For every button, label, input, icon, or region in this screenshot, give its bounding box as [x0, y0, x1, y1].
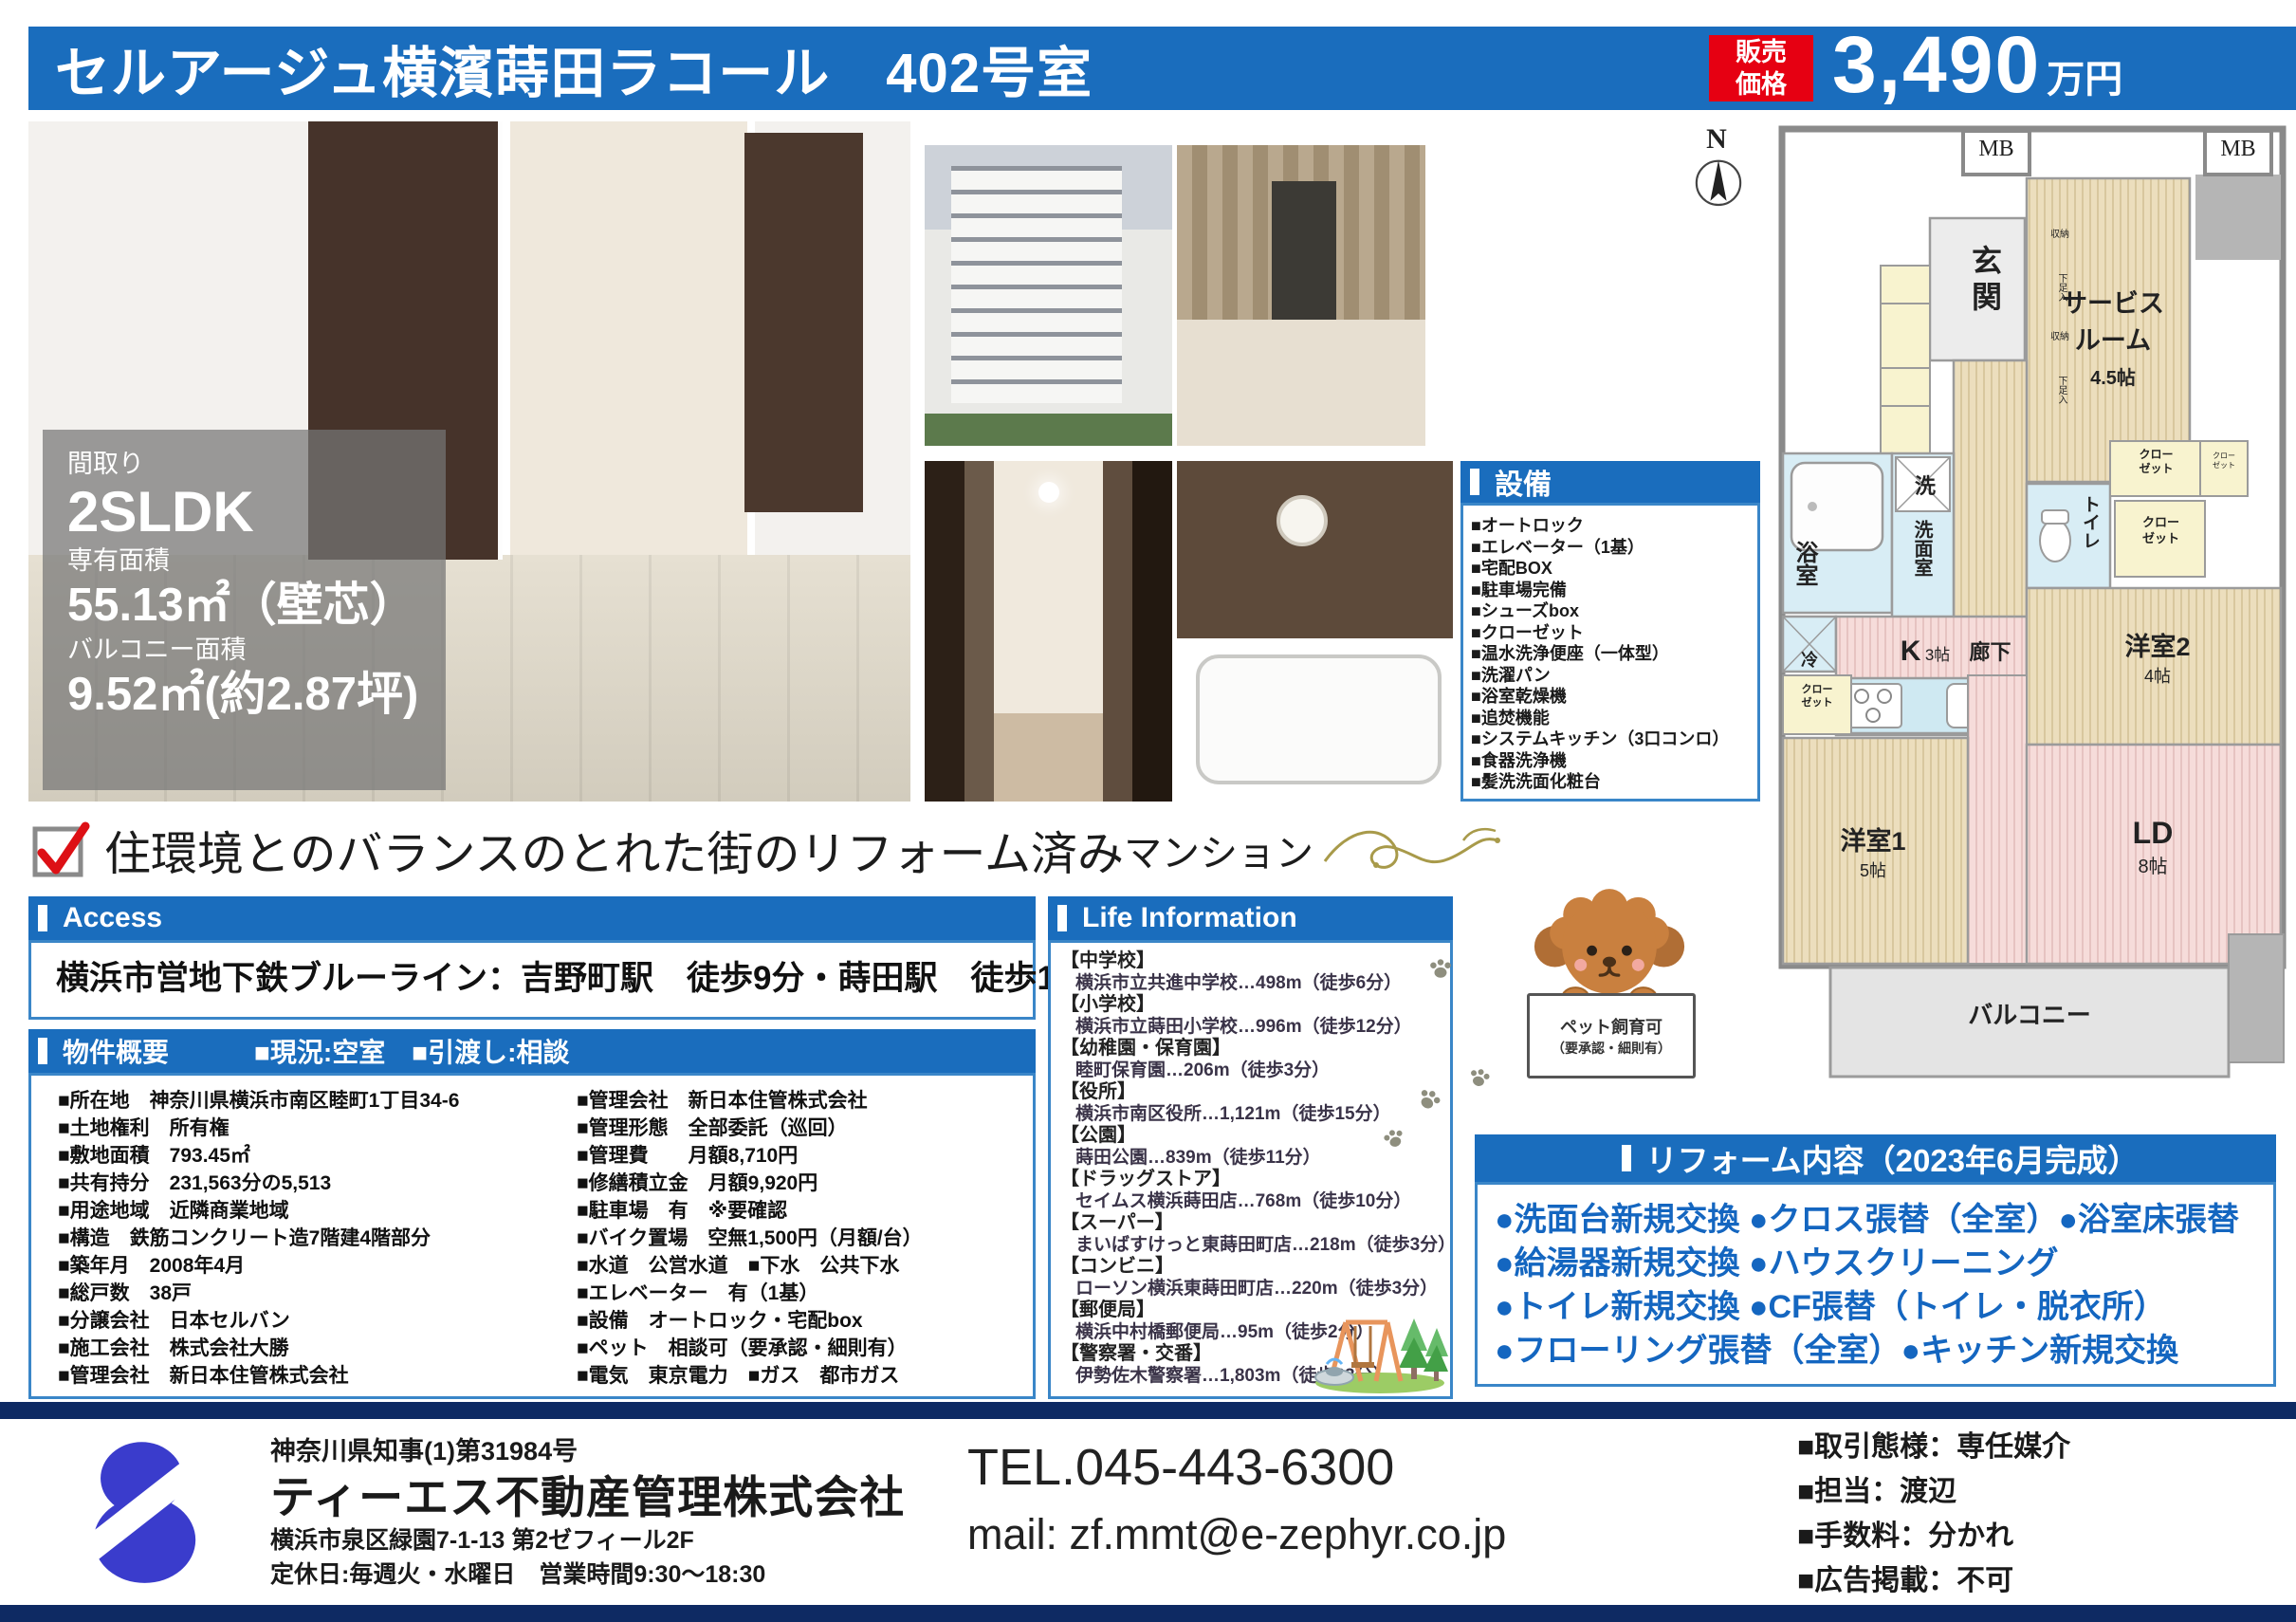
building-greenery [925, 414, 1172, 446]
compass-icon [1690, 152, 1747, 212]
hallway-light [1038, 482, 1059, 503]
flourish-ornament [1321, 820, 1501, 880]
overview-item: ■修繕積立金 月額9,920円 [577, 1170, 923, 1197]
life-detail: 横浜市立蒔田小学校…996m（徒歩12分） [1060, 1016, 1441, 1038]
overview-item: ■電気 東京電力 ■ガス 都市ガス [577, 1362, 923, 1390]
bedroom1-label: 洋室1 5帖 [1802, 820, 1944, 882]
overview-item: ■土地権利 所有権 [58, 1115, 459, 1142]
accent-bar [38, 905, 47, 931]
reform-line: ●トイレ新規交換 ●CF張替（トイレ・脱衣所） [1495, 1285, 2256, 1329]
accent-bar [1057, 905, 1067, 931]
service-room-label-1: サービス [2031, 283, 2195, 320]
life-detail: 蒔田公園…839m（徒歩11分） [1060, 1147, 1441, 1169]
madori-label: 間取り [67, 447, 446, 481]
life-detail: まいばすけっと東蒔田町店…218m（徒歩3分） [1060, 1234, 1441, 1256]
note-line: ■取引態様：専任媒介 [1797, 1425, 2070, 1469]
area-value: 55.13㎡（壁芯） [67, 578, 446, 633]
closet-label: クロー ゼット [2200, 452, 2248, 470]
life-detail: 睦町保育園…206m（徒歩3分） [1060, 1060, 1441, 1081]
overview-item: ■施工会社 株式会社大勝 [58, 1335, 459, 1362]
overview-left-column: ■所在地 神奈川県横浜市南区睦町1丁目34-6 ■土地権利 所有権 ■敷地面積 … [58, 1087, 459, 1390]
madori-value: 2SLDK [67, 481, 446, 544]
service-room-label: サービス ルーム 4.5帖 [2031, 283, 2195, 390]
photo-entrance [1177, 145, 1425, 446]
access-text: 横浜市営地下鉄ブルーライン：吉野町駅 徒歩9分・蒔田駅 徒歩10分 [31, 943, 1033, 1015]
reform-line: ●給湯器新規交換 ●ハウスクリーニング [1495, 1242, 2256, 1285]
reform-body: ●洗面台新規交換 ●クロス張替（全室）●浴室床張替 ●給湯器新規交換 ●ハウスク… [1475, 1182, 2276, 1387]
overview-item: ■総戸数 38戸 [58, 1280, 459, 1307]
overview-header: 物件概要 ■現況:空室 ■引渡し:相談 [28, 1029, 1036, 1073]
header-band: セルアージュ横濱蒔田ラコール 402号室 販売 価格 3,490 万円 [28, 27, 2296, 110]
bath-label: 浴室 [1788, 541, 1821, 586]
flyer-page: セルアージュ横濱蒔田ラコール 402号室 販売 価格 3,490 万円 間取り … [0, 0, 2296, 1622]
price: 3,490 万円 [1832, 19, 2122, 111]
overview-item: ■ペット 相談可（要承認・細則有） [577, 1335, 923, 1362]
fridge-label: 冷 [1783, 647, 1836, 672]
page-title: セルアージュ横濱蒔田ラコール 402号室 [55, 28, 1093, 108]
genkan-label: 玄関 [1963, 245, 2007, 317]
playground-illustration [1313, 1301, 1448, 1394]
access-body: 横浜市営地下鉄ブルーライン：吉野町駅 徒歩9分・蒔田駅 徒歩10分 [28, 940, 1036, 1020]
catch-copy: 住環境とのバランスのとれた街のリフォーム済み マンション [30, 808, 1501, 892]
compass-n-label: N [1688, 123, 1745, 156]
email-address: mail: zf.mmt@e-zephyr.co.jp [967, 1510, 1506, 1559]
overview-item: ■築年月 2008年4月 [58, 1252, 459, 1280]
overview-item: ■用途地域 近隣商業地域 [58, 1197, 459, 1225]
overview-right-column: ■管理会社 新日本住管株式会社 ■管理形態 全部委託（巡回） ■管理費 月額8,… [577, 1087, 923, 1390]
life-info-header: Life Information [1048, 896, 1453, 940]
bedroom1-size: 5帖 [1802, 857, 1944, 882]
price-tag-line2: 価格 [1709, 68, 1813, 101]
bedroom2-label: 洋室2 4帖 [2063, 626, 2252, 688]
overview-title: 物件概要 [63, 1032, 169, 1070]
price-tag: 販売 価格 [1709, 35, 1813, 101]
price-value: 3,490 [1832, 19, 2041, 111]
mb-label: MB [2205, 137, 2271, 162]
balcony-label: バルコニー面積 [67, 633, 446, 667]
overview-item: ■駐車場 有 ※要確認 [577, 1197, 923, 1225]
red-check-icon [30, 820, 89, 879]
reform-title: リフォーム内容（2023年6月完成） [1646, 1135, 2140, 1181]
entrance-stone-path [1177, 320, 1425, 446]
life-detail: ローソン横浜東蒔田町店…220m（徒歩3分） [1060, 1278, 1441, 1299]
transaction-notes: ■取引態様：専任媒介 ■担当：渡辺 ■手数料：分かれ ■広告掲載：不可 [1797, 1425, 2070, 1603]
balcony-label: バルコニー [1830, 996, 2229, 1031]
entrance-door [1272, 181, 1336, 320]
bedroom2-name: 洋室2 [2063, 626, 2252, 663]
company-name: ティーエス不動産管理株式会社 [270, 1461, 905, 1526]
photo-hallway [925, 461, 1172, 802]
note-line: ■広告掲載：不可 [1797, 1558, 2070, 1603]
bathtub [1196, 654, 1441, 784]
photo-hall-opening [503, 121, 755, 555]
life-category: 【中学校】 [1060, 950, 1441, 972]
washroom-label: 洗面室 [1908, 520, 1936, 577]
overview-body: ■所在地 神奈川県横浜市南区睦町1丁目34-6 ■土地権利 所有権 ■敷地面積 … [28, 1073, 1036, 1399]
overview-item: ■敷地面積 793.45㎡ [58, 1142, 459, 1170]
overview-item: ■水道 公営水道 ■下水 公共下水 [577, 1252, 923, 1280]
shoe-box [1881, 304, 1930, 368]
photo-bathroom [1177, 461, 1453, 802]
phone-number: TEL.045-443-6300 [967, 1438, 1394, 1497]
overview-item: ■バイク置場 空無1,500円（月額/台） [577, 1225, 923, 1252]
company-logo [71, 1434, 218, 1586]
accent-bar [38, 1038, 47, 1064]
service-room-label-2: ルーム [2031, 320, 2195, 357]
overview-item: ■管理形態 全部委託（巡回） [577, 1115, 923, 1142]
ld-name: LD [2082, 816, 2224, 851]
note-line: ■担当：渡辺 [1797, 1469, 2070, 1514]
life-detail: セイムス横浜蒔田店…768m（徒歩10分） [1060, 1190, 1441, 1212]
washer-label: 洗 [1906, 470, 1944, 500]
overview-item: ■共有持分 231,563分の5,513 [58, 1170, 459, 1197]
overview-status: ■現況:空室 ■引渡し:相談 [254, 1032, 569, 1070]
overview-item: ■構造 鉄筋コンクリート造7階建4階部分 [58, 1225, 459, 1252]
toilet-tank [2042, 510, 2068, 524]
life-detail: 横浜市立共進中学校…498m（徒歩6分） [1060, 972, 1441, 994]
balcony-value: 9.52㎡(約2.87坪) [67, 667, 446, 722]
toilet-bowl [2040, 520, 2070, 562]
overview-item: ■設備 オートロック・宅配box [577, 1307, 923, 1335]
life-info-title: Life Information [1082, 902, 1297, 934]
price-tag-line1: 販売 [1709, 36, 1813, 68]
floor-plan: N [1660, 123, 2296, 1129]
storage-box [1881, 368, 1930, 406]
reform-line: ●フローリング張替（全室）●キッチン新規交換 [1495, 1329, 2256, 1373]
equipment-title: 設備 [1495, 461, 1552, 503]
closet-label: クロー ゼット [2112, 448, 2200, 476]
paw-print-icon [1465, 1063, 1493, 1091]
mb-duct [2195, 175, 2281, 260]
ld-size: 8帖 [2082, 851, 2224, 878]
mb-label: MB [1963, 137, 2030, 162]
bathroom-wall [1177, 461, 1453, 638]
hallway-floor [994, 713, 1103, 802]
catch-copy-suffix: マンション [1124, 822, 1313, 877]
bedroom1-name: 洋室1 [1802, 820, 1944, 857]
separator-band [0, 1402, 2296, 1419]
life-category: 【ドラッグストア】 [1060, 1169, 1441, 1190]
life-category: 【コンビニ】 [1060, 1256, 1441, 1278]
photo-info-overlay: 間取り 2SLDK 専有面積 55.13㎡（壁芯） バルコニー面積 9.52㎡(… [43, 430, 446, 790]
kitchen-size: 3帖 [1925, 646, 1950, 664]
life-detail: 横浜市南区役所…1,121m（徒歩15分） [1060, 1103, 1441, 1125]
overview-item: ■分譲会社 日本セルバン [58, 1307, 459, 1335]
overview-item: ■エレベーター 有（1基） [577, 1280, 923, 1307]
overview-item: ■管理会社 新日本住管株式会社 [58, 1362, 459, 1390]
bedroom2-size: 4帖 [2063, 663, 2252, 688]
price-unit: 万円 [2047, 48, 2122, 103]
life-category: 【スーパー】 [1060, 1212, 1441, 1234]
ld-passage [1968, 675, 2027, 964]
access-title: Access [63, 902, 162, 934]
life-category: 【幼稚園・保育園】 [1060, 1038, 1441, 1060]
ld-label: LD 8帖 [2082, 816, 2224, 878]
overview-item: ■所在地 神奈川県横浜市南区睦町1丁目34-6 [58, 1087, 459, 1115]
business-hours: 定休日:毎週火・水曜日 営業時間9:30～18:30 [270, 1556, 765, 1590]
photo-building-exterior [925, 145, 1172, 446]
overview-item: ■管理会社 新日本住管株式会社 [577, 1087, 923, 1115]
catch-copy-main: 住環境とのバランスのとれた街のリフォーム済み [104, 817, 1124, 884]
kitchen-label: K 3帖 [1868, 636, 1982, 668]
bath-drain [1808, 502, 1817, 511]
photo-interior-main: 間取り 2SLDK 専有面積 55.13㎡（壁芯） バルコニー面積 9.52㎡(… [28, 121, 910, 802]
area-label: 専有面積 [67, 544, 446, 578]
life-category: 【役所】 [1060, 1081, 1441, 1103]
balcony-pillar [2229, 934, 2284, 1062]
bathtub-shape [1791, 463, 1883, 550]
service-room-size: 4.5帖 [2031, 362, 2195, 390]
access-header: Access [28, 896, 1036, 940]
accent-bar [1622, 1145, 1631, 1171]
storage-box [1881, 266, 1930, 304]
kitchen-k: K [1901, 636, 1921, 667]
closet-label: クロー ゼット [2117, 514, 2205, 546]
storage-label: 収納 [2037, 226, 2083, 240]
reform-header: リフォーム内容（2023年6月完成） [1475, 1134, 2276, 1182]
closet-label: クロー ゼット [1783, 683, 1851, 710]
building-facade [951, 166, 1122, 403]
toilet-label: トイレ [2077, 495, 2103, 549]
note-line: ■手数料：分かれ [1797, 1514, 2070, 1558]
bathroom-light [1277, 495, 1328, 546]
company-address: 横浜市泉区緑園7-1-13 第2ゼフィール2F [270, 1521, 694, 1556]
floor-plan-drawing [1778, 123, 2290, 1110]
overview-item: ■管理費 月額8,710円 [577, 1142, 923, 1170]
paw-print-icon [1428, 956, 1453, 981]
reform-line: ●洗面台新規交換 ●クロス張替（全室）●浴室床張替 [1495, 1198, 2256, 1242]
photo-dark-door-right [744, 133, 863, 512]
accent-bar [1470, 469, 1479, 495]
bottom-band [0, 1605, 2296, 1622]
life-category: 【小学校】 [1060, 994, 1441, 1016]
